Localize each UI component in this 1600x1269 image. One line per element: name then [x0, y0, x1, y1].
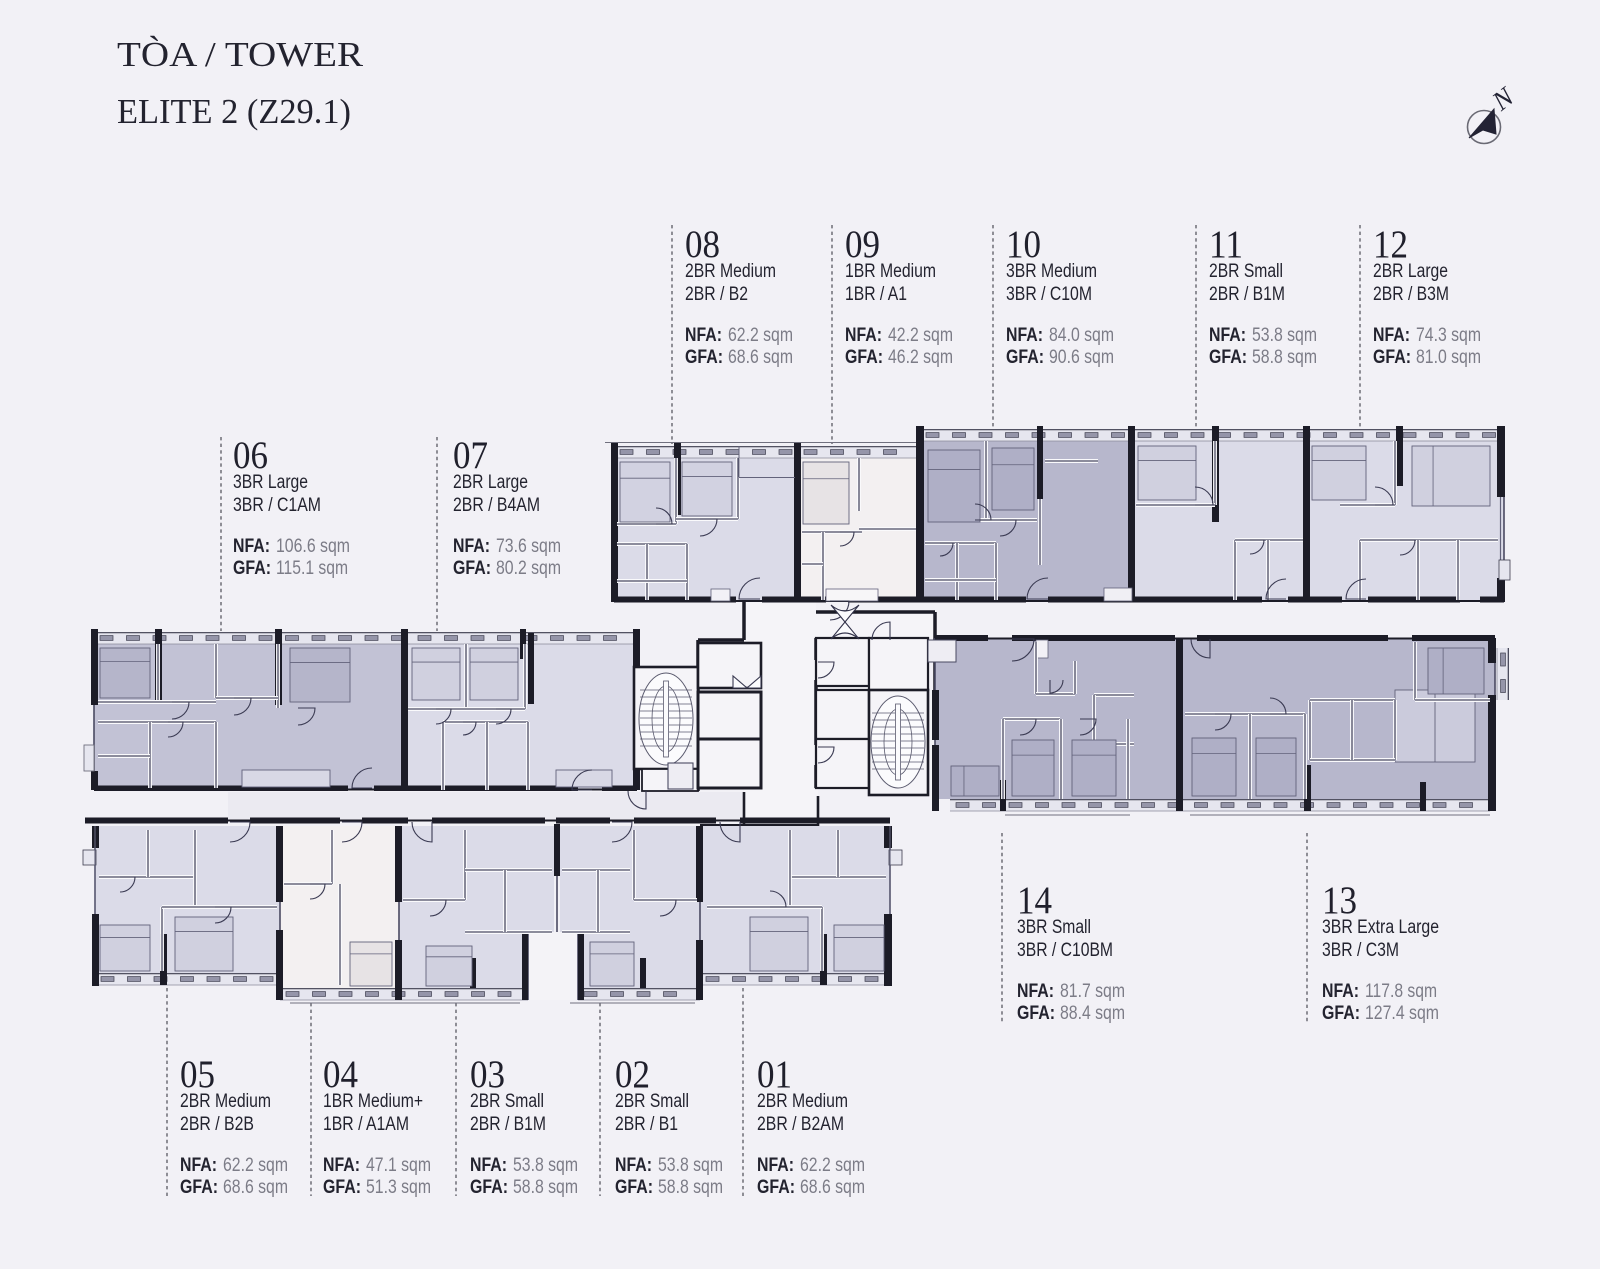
svg-text:58.8 sqm: 58.8 sqm [1252, 347, 1317, 368]
svg-text:74.3 sqm: 74.3 sqm [1416, 325, 1481, 346]
svg-text:2BR / B1M: 2BR / B1M [1209, 284, 1285, 305]
svg-text:2BR / B1M: 2BR / B1M [470, 1114, 546, 1135]
svg-text:NFA:: NFA: [757, 1155, 794, 1176]
svg-text:GFA:: GFA: [323, 1177, 361, 1198]
svg-text:2BR / B2B: 2BR / B2B [180, 1114, 254, 1135]
svg-text:127.4 sqm: 127.4 sqm [1365, 1003, 1439, 1024]
svg-text:53.8 sqm: 53.8 sqm [513, 1155, 578, 1176]
svg-text:2BR Small: 2BR Small [615, 1091, 689, 1112]
svg-text:03: 03 [470, 1053, 505, 1096]
svg-text:GFA:: GFA: [1322, 1003, 1360, 1024]
svg-text:02: 02 [615, 1053, 650, 1096]
svg-text:NFA:: NFA: [1322, 981, 1359, 1002]
svg-text:58.8 sqm: 58.8 sqm [513, 1177, 578, 1198]
svg-text:GFA:: GFA: [1373, 347, 1411, 368]
svg-text:GFA:: GFA: [453, 558, 491, 579]
svg-text:115.1 sqm: 115.1 sqm [276, 558, 348, 579]
svg-text:GFA:: GFA: [470, 1177, 508, 1198]
svg-text:GFA:: GFA: [615, 1177, 653, 1198]
svg-text:62.2 sqm: 62.2 sqm [728, 325, 793, 346]
svg-text:106.6 sqm: 106.6 sqm [276, 536, 350, 557]
svg-text:11: 11 [1209, 223, 1243, 266]
svg-text:2BR / B1: 2BR / B1 [615, 1114, 678, 1135]
svg-text:14: 14 [1017, 879, 1052, 922]
svg-text:NFA:: NFA: [470, 1155, 507, 1176]
svg-text:68.6 sqm: 68.6 sqm [223, 1177, 288, 1198]
svg-text:2BR Medium: 2BR Medium [685, 261, 776, 282]
svg-text:NFA:: NFA: [323, 1155, 360, 1176]
svg-text:GFA:: GFA: [1017, 1003, 1055, 1024]
svg-text:90.6 sqm: 90.6 sqm [1049, 347, 1114, 368]
svg-text:46.2 sqm: 46.2 sqm [888, 347, 953, 368]
svg-text:42.2 sqm: 42.2 sqm [888, 325, 953, 346]
svg-text:51.3 sqm: 51.3 sqm [366, 1177, 431, 1198]
svg-text:53.8 sqm: 53.8 sqm [1252, 325, 1317, 346]
svg-text:05: 05 [180, 1053, 215, 1096]
svg-text:ELITE 2 (Z29.1): ELITE 2 (Z29.1) [117, 92, 351, 131]
svg-text:08: 08 [685, 223, 720, 266]
svg-text:NFA:: NFA: [685, 325, 722, 346]
svg-text:NFA:: NFA: [180, 1155, 217, 1176]
svg-text:2BR Large: 2BR Large [1373, 261, 1448, 282]
svg-text:3BR Extra Large: 3BR Extra Large [1322, 917, 1439, 938]
svg-text:3BR / C3M: 3BR / C3M [1322, 940, 1399, 961]
svg-text:09: 09 [845, 223, 880, 266]
svg-text:NFA:: NFA: [845, 325, 882, 346]
svg-text:3BR / C10BM: 3BR / C10BM [1017, 940, 1113, 961]
svg-text:NFA:: NFA: [615, 1155, 652, 1176]
svg-text:NFA:: NFA: [1209, 325, 1246, 346]
svg-text:GFA:: GFA: [1209, 347, 1247, 368]
svg-text:1BR Medium: 1BR Medium [845, 261, 936, 282]
svg-text:NFA:: NFA: [1373, 325, 1410, 346]
svg-text:47.1 sqm: 47.1 sqm [366, 1155, 431, 1176]
svg-text:2BR Medium: 2BR Medium [180, 1091, 271, 1112]
svg-text:2BR Large: 2BR Large [453, 472, 528, 493]
svg-text:2BR / B4AM: 2BR / B4AM [453, 495, 540, 516]
svg-text:NFA:: NFA: [453, 536, 490, 557]
svg-text:1BR Medium+: 1BR Medium+ [323, 1091, 423, 1112]
svg-text:62.2 sqm: 62.2 sqm [223, 1155, 288, 1176]
svg-text:NFA:: NFA: [233, 536, 270, 557]
svg-text:2BR Small: 2BR Small [1209, 261, 1283, 282]
svg-text:GFA:: GFA: [233, 558, 271, 579]
svg-text:GFA:: GFA: [685, 347, 723, 368]
svg-text:84.0 sqm: 84.0 sqm [1049, 325, 1114, 346]
svg-text:1BR / A1AM: 1BR / A1AM [323, 1114, 409, 1135]
svg-text:117.8 sqm: 117.8 sqm [1365, 981, 1437, 1002]
svg-text:80.2 sqm: 80.2 sqm [496, 558, 561, 579]
svg-text:3BR / C1AM: 3BR / C1AM [233, 495, 321, 516]
svg-text:2BR / B2AM: 2BR / B2AM [757, 1114, 844, 1135]
svg-text:06: 06 [233, 434, 268, 477]
svg-text:GFA:: GFA: [845, 347, 883, 368]
svg-text:88.4 sqm: 88.4 sqm [1060, 1003, 1125, 1024]
svg-text:81.0 sqm: 81.0 sqm [1416, 347, 1481, 368]
svg-text:10: 10 [1006, 223, 1041, 266]
svg-text:GFA:: GFA: [1006, 347, 1044, 368]
svg-text:53.8 sqm: 53.8 sqm [658, 1155, 723, 1176]
svg-text:2BR Small: 2BR Small [470, 1091, 544, 1112]
svg-text:58.8 sqm: 58.8 sqm [658, 1177, 723, 1198]
svg-text:73.6 sqm: 73.6 sqm [496, 536, 561, 557]
svg-text:3BR Large: 3BR Large [233, 472, 308, 493]
svg-text:62.2 sqm: 62.2 sqm [800, 1155, 865, 1176]
svg-text:12: 12 [1373, 223, 1408, 266]
svg-text:NFA:: NFA: [1006, 325, 1043, 346]
svg-text:1BR / A1: 1BR / A1 [845, 284, 907, 305]
svg-text:68.6 sqm: 68.6 sqm [728, 347, 793, 368]
svg-text:2BR Medium: 2BR Medium [757, 1091, 848, 1112]
svg-text:68.6 sqm: 68.6 sqm [800, 1177, 865, 1198]
svg-text:01: 01 [757, 1053, 792, 1096]
svg-text:GFA:: GFA: [757, 1177, 795, 1198]
svg-text:3BR / C10M: 3BR / C10M [1006, 284, 1092, 305]
svg-text:07: 07 [453, 434, 488, 477]
svg-text:GFA:: GFA: [180, 1177, 218, 1198]
svg-text:2BR / B3M: 2BR / B3M [1373, 284, 1449, 305]
svg-text:NFA:: NFA: [1017, 981, 1054, 1002]
svg-text:13: 13 [1322, 879, 1357, 922]
svg-text:3BR Medium: 3BR Medium [1006, 261, 1097, 282]
svg-text:TÒA / TOWER: TÒA / TOWER [117, 34, 364, 74]
svg-text:04: 04 [323, 1053, 358, 1096]
svg-text:81.7 sqm: 81.7 sqm [1060, 981, 1125, 1002]
svg-text:3BR Small: 3BR Small [1017, 917, 1091, 938]
svg-text:2BR / B2: 2BR / B2 [685, 284, 748, 305]
